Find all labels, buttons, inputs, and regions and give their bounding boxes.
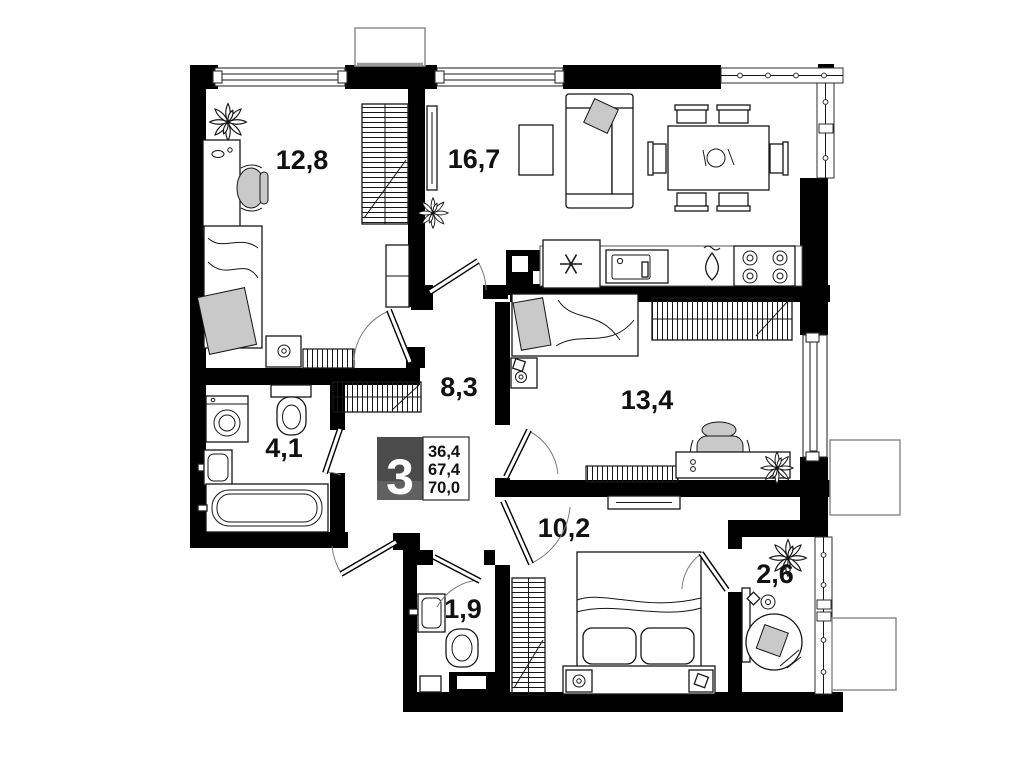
window	[435, 68, 564, 86]
room-label: 4,1	[265, 433, 303, 463]
ac-unit	[830, 440, 900, 515]
window	[213, 68, 347, 86]
badge-area-total: 70,0	[428, 479, 460, 497]
coat-rack	[333, 382, 421, 412]
room-label: 10,2	[538, 513, 591, 543]
dresser	[586, 466, 678, 482]
bed	[512, 294, 638, 356]
double-bed	[563, 552, 715, 694]
duct	[449, 672, 495, 694]
badge-area-living: 36,4	[428, 443, 461, 461]
room-label: 1,9	[444, 594, 482, 624]
pillow	[641, 628, 694, 664]
cabinet	[386, 245, 409, 307]
pillow	[583, 628, 636, 664]
round-chair	[746, 614, 802, 670]
tv	[427, 106, 437, 190]
bed	[197, 226, 262, 354]
wardrobe	[512, 578, 545, 695]
duct	[420, 676, 441, 692]
desk	[203, 140, 240, 236]
coffee-table	[519, 125, 553, 175]
nightstand	[566, 670, 592, 692]
room-label: 8,3	[440, 372, 478, 402]
bathtub	[198, 484, 328, 532]
nightstand	[511, 358, 537, 388]
plant-icon	[418, 198, 448, 228]
plant-icon	[761, 452, 793, 484]
toilet	[446, 629, 478, 667]
ac-unit	[355, 28, 425, 66]
wardrobe	[362, 104, 408, 224]
room-label: 13,4	[621, 385, 674, 415]
info-badge: 3 36,4 67,4 70,0	[377, 437, 469, 505]
badge-rooms-count: 3	[386, 449, 414, 505]
sofa	[566, 94, 633, 208]
dresser	[303, 349, 354, 368]
kitchen-counter	[540, 240, 802, 288]
shelf	[608, 496, 680, 509]
washing-machine	[206, 396, 248, 442]
room-label: 12,8	[276, 145, 329, 175]
room-label: 2,6	[756, 559, 794, 589]
fridge	[543, 240, 600, 288]
vent-shaft	[512, 256, 528, 272]
wardrobe	[652, 298, 792, 340]
ac-unit	[832, 618, 896, 690]
window	[803, 333, 827, 461]
room-label: 16,7	[448, 144, 501, 174]
balcony-glazing	[815, 537, 832, 694]
kitchen-sink	[606, 250, 668, 283]
floor-plan-page: 12,8	[0, 0, 1024, 768]
nightstand	[266, 336, 301, 367]
plant-icon	[210, 104, 247, 141]
badge-area-main: 67,4	[428, 461, 461, 479]
stove	[734, 246, 795, 286]
